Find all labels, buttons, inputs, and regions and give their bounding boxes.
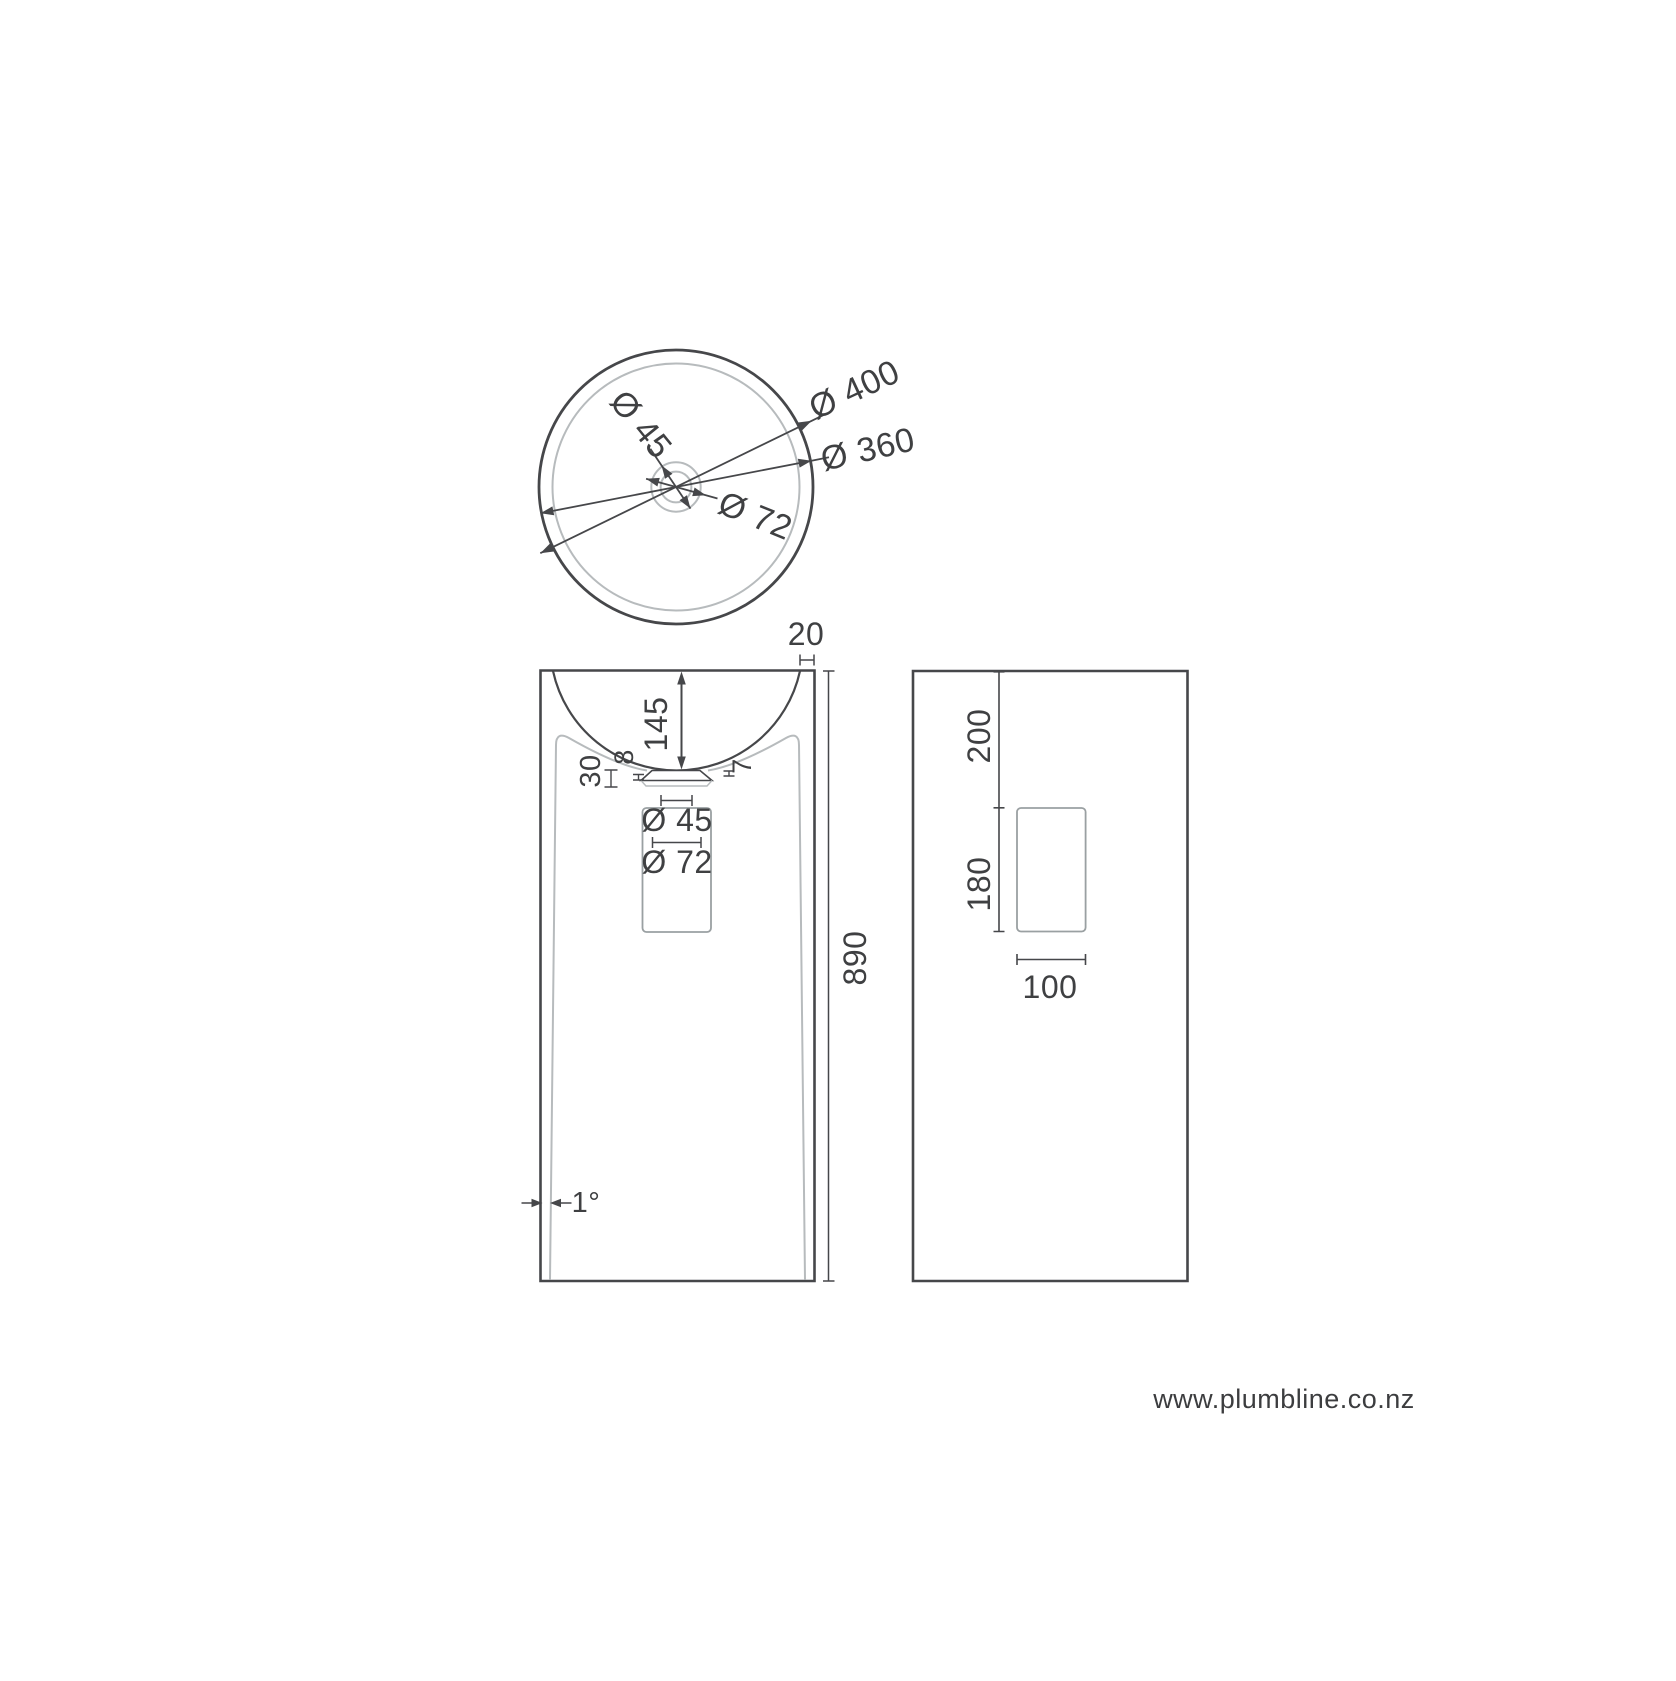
dim-label-outer-diameter: Ø 400 (803, 353, 905, 428)
dim-label-waste-inner-diameter: Ø 45 (641, 802, 712, 838)
dim-flange-step-right: 7 (724, 758, 758, 776)
dim-label-top-to-recess: 200 (961, 709, 997, 764)
dim-label-recess-height: 180 (961, 857, 997, 912)
dim-rim-thickness: 20 (788, 616, 825, 666)
dim-waste-inner-diameter: Ø 45 (641, 795, 712, 838)
dim-label-drain-outer-diameter: Ø 72 (713, 484, 797, 548)
dim-label-overall-height: 890 (837, 931, 873, 986)
dim-waste-outer-diameter: Ø 72 (641, 837, 712, 880)
dim-label-basin-diameter: Ø 360 (817, 420, 918, 478)
front-view: 20 145 30 8 7 Ø 45 (522, 616, 874, 1281)
dim-overall-height: 890 (823, 671, 873, 1281)
footer-url: www.plumbline.co.nz (1152, 1384, 1415, 1414)
technical-drawing: Ø 400 Ø 360 Ø 45 Ø 72 (0, 0, 1676, 1676)
drawing-canvas: Ø 400 Ø 360 Ø 45 Ø 72 (0, 0, 1676, 1676)
dim-label-wall-taper: 1° (572, 1187, 601, 1219)
top-view: Ø 400 Ø 360 Ø 45 Ø 72 (539, 350, 918, 624)
dim-label-rim-thickness: 20 (788, 616, 825, 652)
dim-label-flange-step-left: 8 (609, 749, 639, 765)
dim-label-recess-width: 100 (1023, 969, 1078, 1005)
recess-box (1017, 808, 1086, 932)
dim-label-waste-outer-diameter: Ø 72 (641, 844, 712, 880)
dim-drain-inner-diameter: Ø 45 (602, 383, 690, 508)
side-view: 200 180 100 (913, 671, 1188, 1281)
dim-label-drain-inner-diameter: Ø 45 (602, 383, 679, 466)
dim-label-basin-depth: 145 (638, 697, 674, 752)
dim-label-flange-step-right: 7 (727, 758, 757, 774)
drain-flange (641, 771, 712, 781)
dim-label-underbowl-gap: 30 (575, 754, 607, 787)
